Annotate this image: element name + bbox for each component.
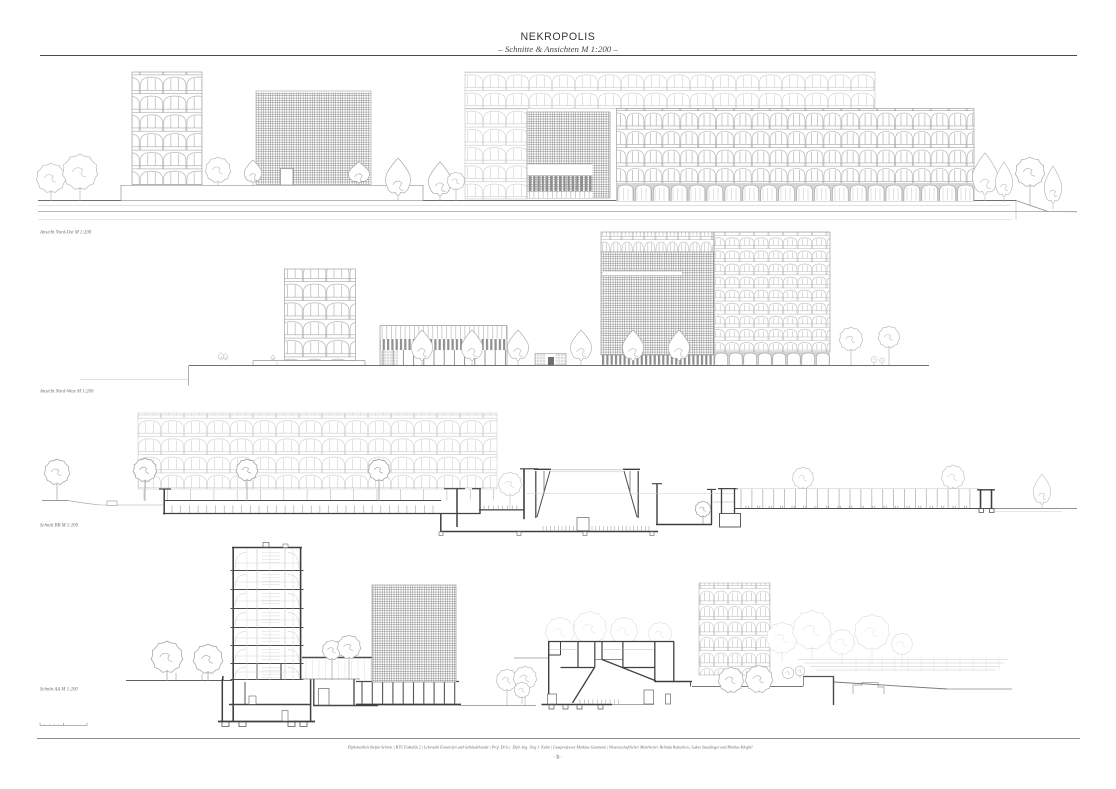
svg-text:– Schnitte & Ansichten M 1:200: – Schnitte & Ansichten M 1:200 – (497, 44, 618, 54)
svg-text:Schnitt AA M 1:200: Schnitt AA M 1:200 (40, 688, 78, 693)
svg-text:Schnitt BB M 1:200: Schnitt BB M 1:200 (40, 524, 79, 529)
svg-text:NEKROPOLIS: NEKROPOLIS (521, 31, 596, 43)
svg-text:· b ·: · b · (553, 755, 562, 761)
svg-text:Ansicht Nord-West M 1:200: Ansicht Nord-West M 1:200 (39, 390, 94, 395)
svg-text:Ansicht Nord-Ost M 1:200: Ansicht Nord-Ost M 1:200 (39, 231, 92, 236)
